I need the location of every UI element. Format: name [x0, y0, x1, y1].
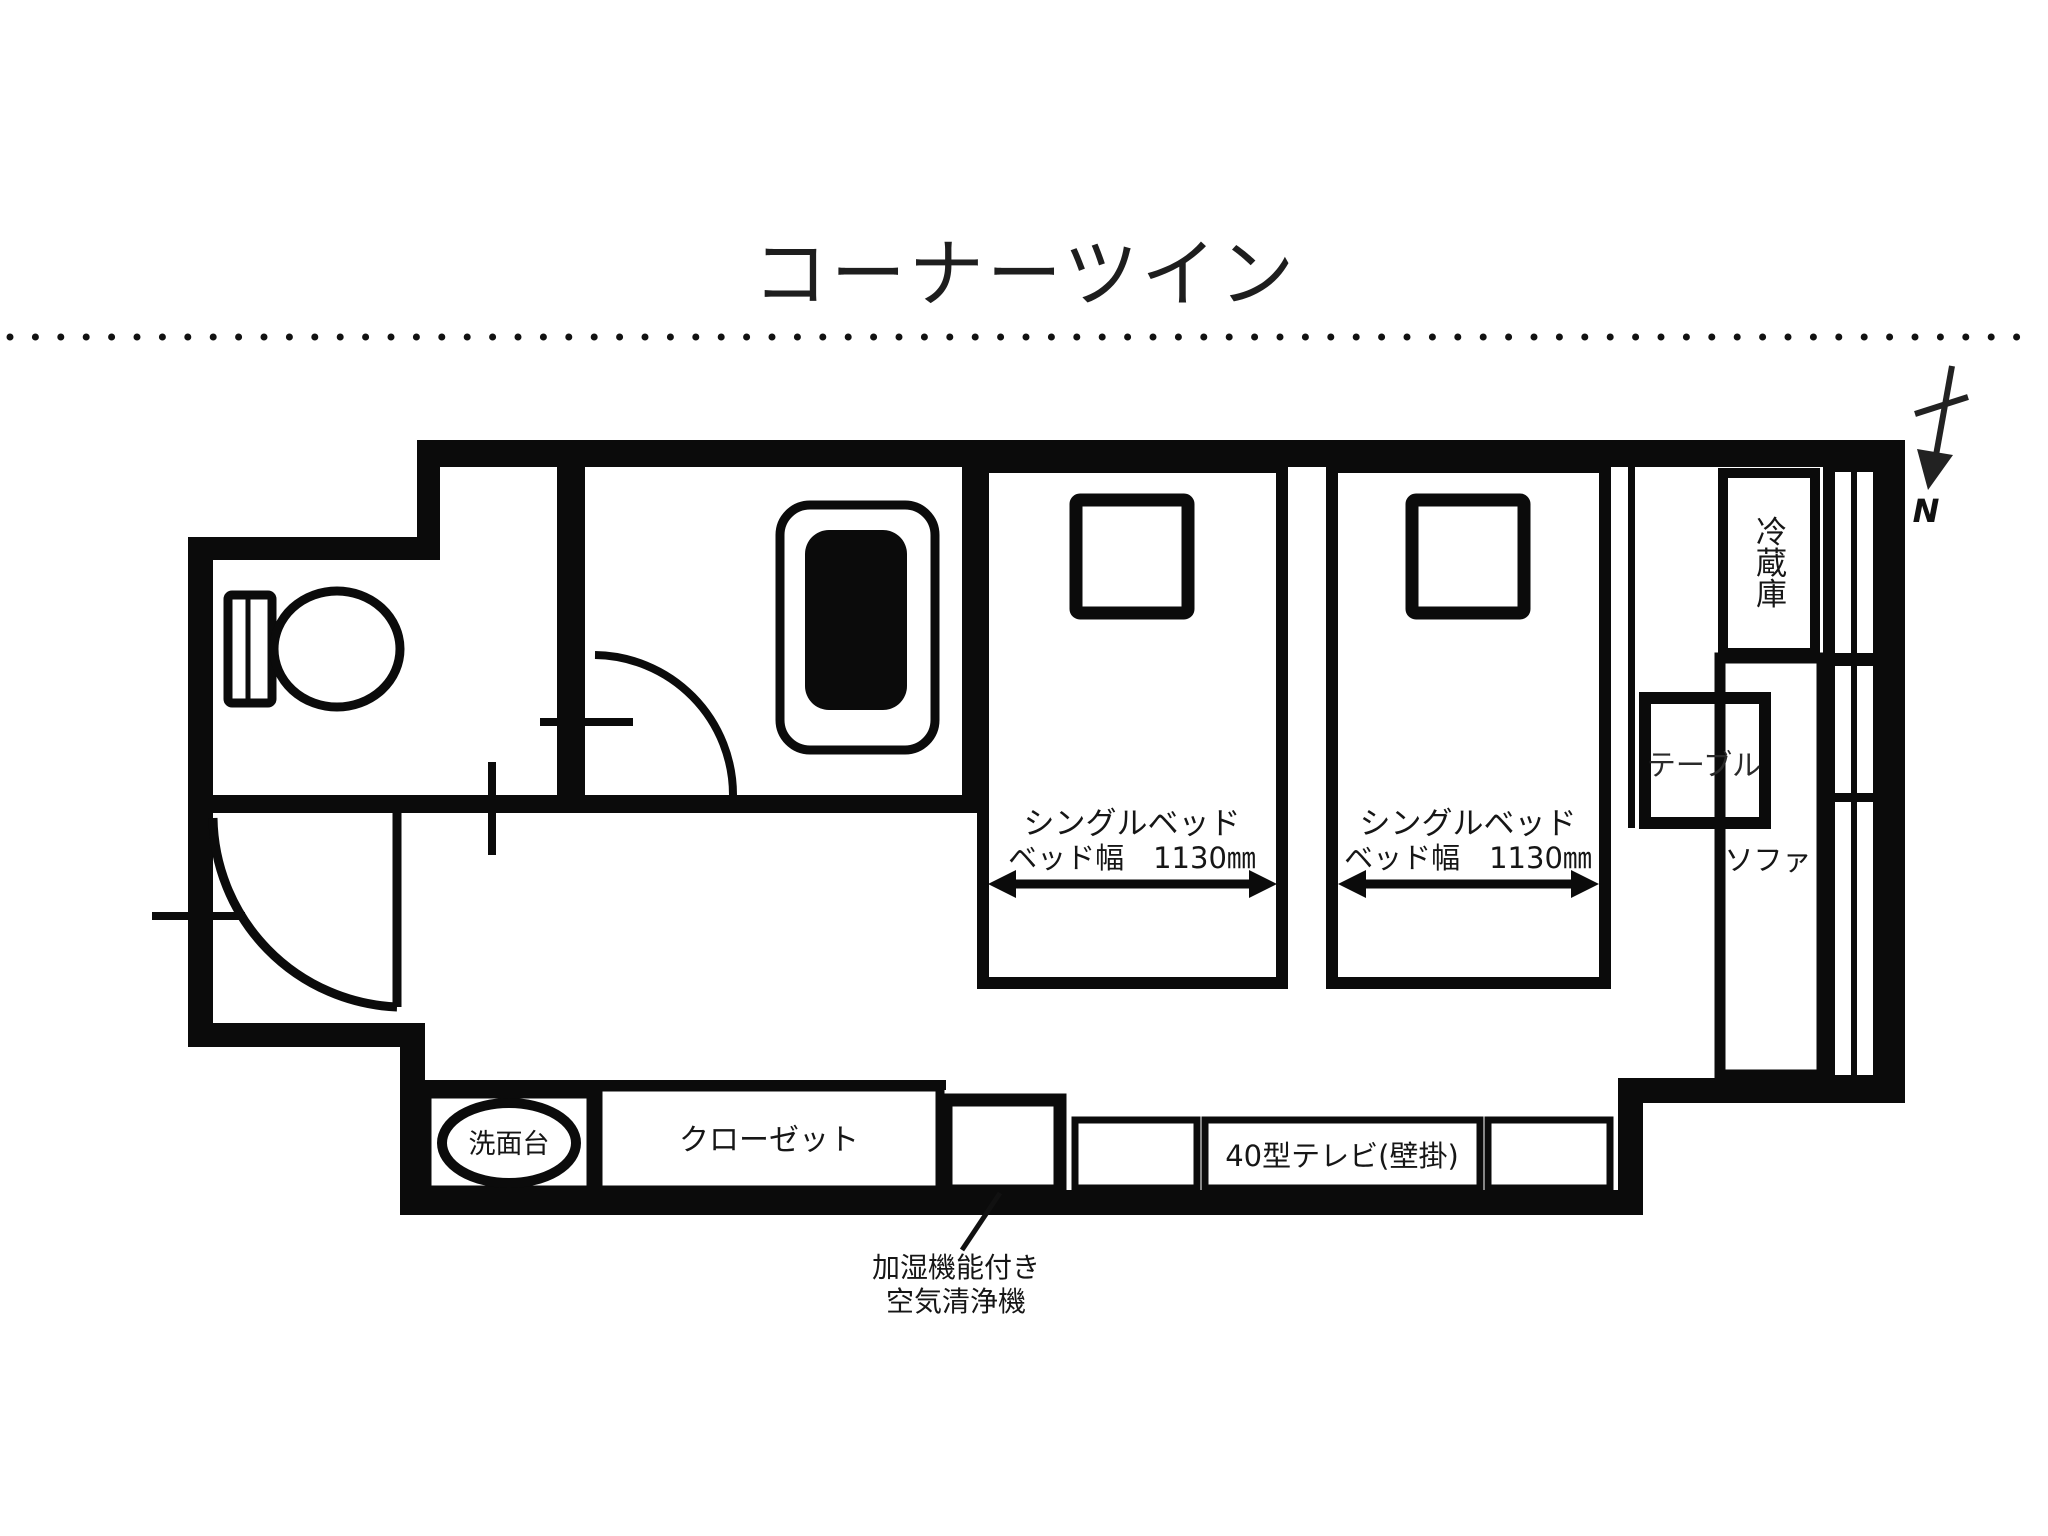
counter-box-right — [1488, 1120, 1610, 1188]
window-wall — [1823, 462, 1885, 1078]
sofa-label: ソファ — [1724, 843, 1811, 877]
window-mullion-upper — [1833, 653, 1876, 666]
wall-toilet-bath-divider — [557, 467, 585, 813]
bed-2-width-label: ベッド幅 1130㎜ — [1344, 841, 1592, 875]
refrigerator: 冷蔵庫 — [1723, 473, 1815, 653]
toilet — [228, 591, 400, 707]
compass-north-label: N — [1913, 492, 1940, 530]
toilet-bowl — [274, 591, 400, 707]
closet-label: クローゼット — [679, 1123, 859, 1158]
tv-counter-row: 40型テレビ(壁掛) — [1075, 1120, 1610, 1188]
table-label: テーブル — [1647, 748, 1761, 782]
bed-2-name: シングルベッド — [1360, 806, 1577, 842]
bed-1-width-label: ベッド幅 1130㎜ — [1008, 841, 1256, 875]
bed-1: シングルベッド ベッド幅 1130㎜ — [983, 467, 1282, 983]
bed-1-name: シングルベッド — [1024, 806, 1241, 842]
washstand-label: 洗面台 — [469, 1129, 550, 1160]
bed-1-pillow — [1076, 500, 1188, 613]
bed-2: シングルベッド ベッド幅 1130㎜ — [1332, 467, 1605, 983]
air-purifier-caption-line1: 加湿機能付き — [872, 1251, 1040, 1284]
window-slot-left — [1835, 472, 1851, 1075]
wall-partition-right — [1628, 462, 1635, 828]
floorplan-canvas: コーナーツイン N — [0, 0, 2048, 1536]
refrigerator-label: 冷蔵庫 — [1750, 516, 1787, 609]
air-purifier-caption-line2: 空気清浄機 — [886, 1285, 1026, 1318]
wall-bath-corridor — [213, 795, 990, 813]
counter-box-left — [1075, 1120, 1197, 1188]
bathtub — [780, 505, 935, 750]
closet: クローゼット — [598, 1087, 940, 1190]
window-mullion-lower — [1833, 793, 1876, 802]
bed-2-pillow — [1412, 500, 1524, 613]
window-wall-block — [1823, 462, 1885, 1078]
window-slot-right — [1857, 472, 1873, 1075]
floorplan-page: コーナーツイン N — [0, 0, 2048, 1536]
tv-label: 40型テレビ(壁掛) — [1225, 1139, 1459, 1173]
washstand: 洗面台 — [425, 1092, 593, 1192]
page-title: コーナーツイン — [753, 230, 1298, 318]
bathtub-basin — [805, 530, 907, 710]
air-purifier-outline — [946, 1100, 1060, 1191]
